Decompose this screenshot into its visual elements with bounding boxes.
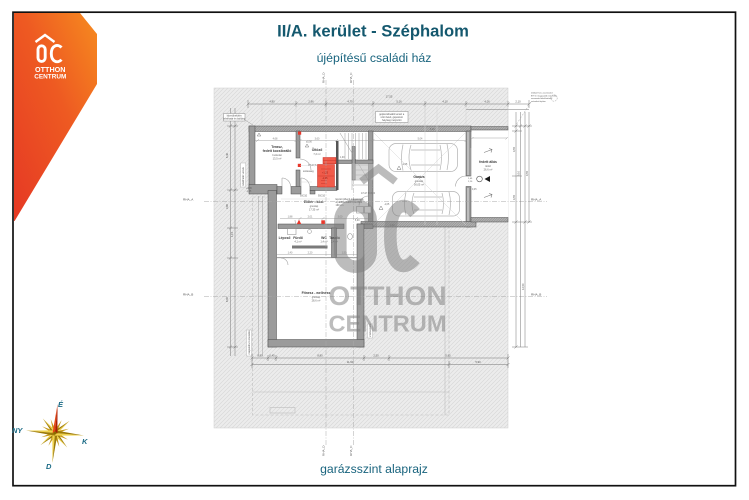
svg-text:5,16: 5,16: [396, 100, 402, 104]
svg-text:greslap: greslap: [415, 179, 424, 183]
svg-text:28,6 m²: 28,6 m²: [312, 299, 321, 303]
svg-text:5,04: 5,04: [418, 138, 423, 141]
svg-text:4,1 m²: 4,1 m²: [294, 240, 301, 244]
svg-text:5,90: 5,90: [475, 360, 481, 364]
svg-text:közműbekötés: közműbekötés: [227, 115, 243, 118]
svg-text:RHA_C: RHA_C: [349, 445, 353, 456]
svg-text:térkő: térkő: [485, 164, 491, 168]
svg-text:RHA_D: RHA_D: [322, 445, 326, 456]
svg-text:-1,05: -1,05: [322, 177, 328, 180]
svg-text:1,00: 1,00: [355, 220, 360, 222]
svg-text:+0,45: +0,45: [246, 188, 253, 190]
svg-text:Fürdő: Fürdő: [293, 236, 303, 240]
svg-text:7,2 m²: 7,2 m²: [313, 152, 320, 156]
svg-text:-1,05: -1,05: [246, 191, 252, 193]
svg-text:0,45: 0,45: [472, 189, 477, 191]
svg-text:3,60: 3,60: [315, 138, 320, 141]
svg-text:RHA_C: RHA_C: [349, 72, 353, 83]
svg-text:CENTRUM: CENTRUM: [329, 311, 447, 337]
svg-text:17x17,6=3,00: 17x17,6=3,00: [361, 193, 376, 195]
svg-text:-1,05: -1,05: [402, 164, 408, 166]
svg-text:13,5 m²: 13,5 m²: [273, 157, 282, 161]
svg-text:K: K: [82, 437, 88, 446]
svg-text:1,88: 1,88: [288, 216, 293, 219]
svg-text:Garázs: Garázs: [413, 175, 424, 179]
svg-text:36,05 m²: 36,05 m²: [414, 183, 424, 187]
svg-text:6,40: 6,40: [225, 152, 229, 158]
svg-text:5,16: 5,16: [430, 129, 435, 131]
svg-text:9,10: 9,10: [517, 170, 521, 176]
svg-text:NY: NY: [12, 426, 23, 435]
svg-text:8,90: 8,90: [225, 296, 229, 302]
svg-text:szomszéd telekhatártól: szomszéd telekhatártól: [531, 97, 553, 100]
svg-text:2,20: 2,20: [308, 252, 313, 255]
svg-text:±0,00: ±0,00: [306, 142, 312, 144]
svg-text:tetőkert fal a szomszéd: tetőkert fal a szomszéd: [531, 92, 553, 95]
svg-text:greslap: greslap: [310, 204, 319, 208]
svg-text:90/210: 90/210: [300, 196, 308, 198]
svg-text:4,55: 4,55: [512, 194, 516, 200]
svg-text:1,15: 1,15: [230, 231, 234, 237]
svg-text:fedett állás: fedett állás: [479, 160, 497, 164]
svg-text:fedett kocsibeálló: fedett kocsibeálló: [263, 149, 292, 153]
svg-text:0,90: 0,90: [257, 354, 263, 358]
svg-text:+1,25: +1,25: [322, 172, 329, 175]
svg-text:11,90: 11,90: [347, 360, 354, 364]
svg-text:számított építve: számított építve: [531, 100, 547, 103]
svg-text:D: D: [46, 462, 52, 471]
svg-text:-1,05: -1,05: [384, 204, 390, 206]
svg-text:telekhatár és building: telekhatár és building: [223, 118, 245, 121]
svg-text:helyiség mélyszint: helyiség mélyszint: [382, 119, 402, 122]
svg-text:4,16: 4,16: [484, 100, 490, 104]
svg-text:burkolat: burkolat: [272, 153, 282, 157]
svg-text:greslap: greslap: [312, 295, 321, 299]
svg-text:garázsszint alaprajz: garázsszint alaprajz: [320, 462, 428, 476]
svg-text:4,55: 4,55: [512, 146, 516, 152]
svg-text:26,6 m²: 26,6 m²: [484, 168, 493, 172]
svg-text:szélesség: szélesség: [303, 170, 314, 173]
svg-text:OTTHON: OTTHON: [329, 281, 447, 311]
svg-text:90/210: 90/210: [318, 196, 326, 198]
svg-text:0,45: 0,45: [269, 354, 275, 358]
svg-text:1,4 m²: 1,4 m²: [320, 240, 327, 244]
svg-text:2,10: 2,10: [515, 100, 521, 104]
svg-text:4,68: 4,68: [273, 138, 278, 141]
svg-text:újépítésű családi ház: újépítésű családi ház: [317, 51, 432, 65]
svg-text:2,50: 2,50: [373, 354, 379, 358]
svg-text:2,01: 2,01: [308, 216, 313, 219]
svg-text:2,96: 2,96: [308, 100, 314, 104]
svg-text:csapadékvíz elvezetés: csapadékvíz elvezetés: [248, 330, 251, 355]
svg-text:17,55: 17,55: [386, 95, 393, 99]
svg-text:RHA_D: RHA_D: [322, 72, 326, 83]
svg-text:CENTRUM: CENTRUM: [34, 73, 66, 80]
svg-text:4,80: 4,80: [269, 100, 275, 104]
svg-text:Lépcső: Lépcső: [279, 236, 291, 240]
svg-text:1,00: 1,00: [340, 157, 345, 159]
svg-text:RHA_A: RHA_A: [531, 198, 542, 202]
svg-text:Előtér - közl.: Előtér - közl.: [304, 200, 324, 204]
svg-text:II/A. kerület - Széphalom: II/A. kerület - Széphalom: [277, 21, 469, 40]
svg-text:3,80: 3,80: [225, 203, 229, 209]
svg-text:1,40: 1,40: [288, 252, 293, 255]
svg-text:9,55: 9,55: [525, 170, 529, 176]
svg-text:Öltöző: Öltöző: [312, 147, 323, 152]
svg-text:telekhatár vonala: telekhatár vonala: [242, 167, 245, 186]
svg-text:RHA_B: RHA_B: [531, 293, 541, 297]
svg-text:17,35 m²: 17,35 m²: [309, 208, 319, 212]
svg-text:RHA_B: RHA_B: [183, 293, 193, 297]
svg-text:4,70: 4,70: [347, 100, 353, 104]
svg-text:12,50: 12,50: [521, 283, 525, 290]
svg-text:8,80: 8,80: [317, 354, 323, 358]
svg-text:5,95: 5,95: [445, 354, 451, 358]
svg-text:RHA_A: RHA_A: [183, 198, 194, 202]
svg-text:4,10: 4,10: [442, 100, 448, 104]
svg-text:WC: WC: [321, 236, 327, 240]
